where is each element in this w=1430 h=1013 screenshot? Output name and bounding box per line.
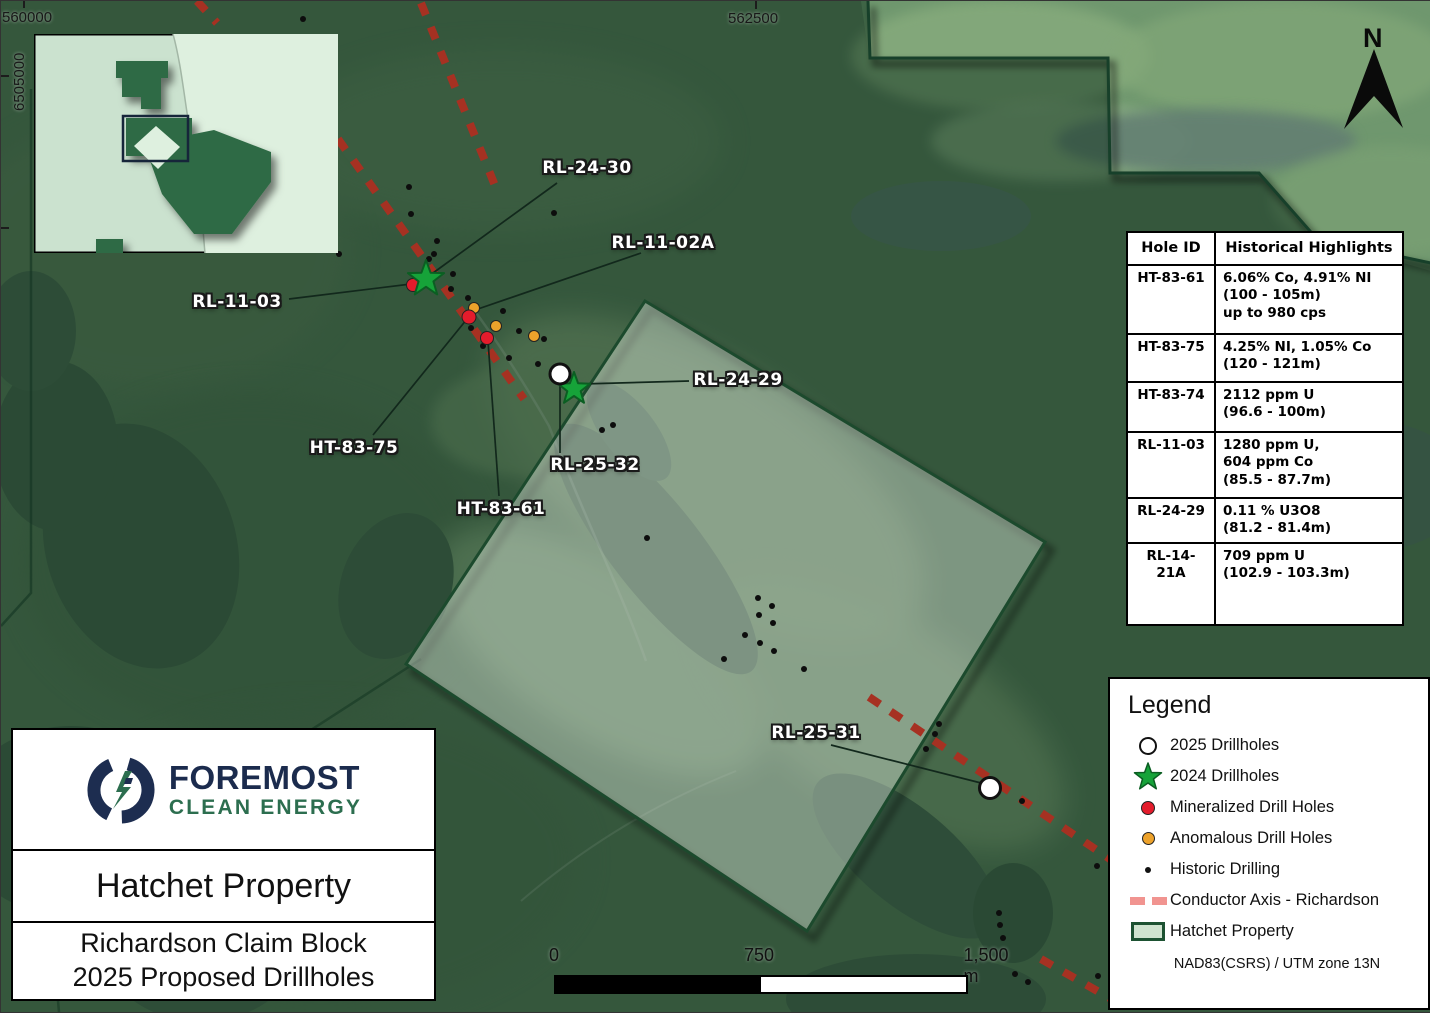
map-canvas: 560000 562500 6505000 N RL-24-30 RL-11-0…	[0, 0, 1430, 1013]
legend-title: Legend	[1128, 691, 1428, 720]
hole-id-cell: HT-83-74	[1127, 382, 1215, 432]
white-circle-icon	[1126, 737, 1170, 755]
company-logo: FOREMOST CLEAN ENERGY	[13, 730, 434, 851]
subtitle-line2: 2025 Proposed Drillholes	[73, 961, 375, 995]
table-row: RL-24-29 0.11 % U3O8 (81.2 - 81.4m)	[1127, 498, 1403, 543]
dashed-line-icon	[1126, 897, 1170, 905]
scale-label-end: 1,500 m	[963, 945, 1008, 987]
table-header-row: Hole ID Historical Highlights	[1127, 232, 1403, 265]
highlight-cell: 1280 ppm U, 604 ppm Co (85.5 - 87.7m)	[1215, 432, 1403, 498]
drillhole-label-rl-24-29: RL-24-29	[693, 370, 782, 390]
red-dot-icon	[1126, 801, 1170, 815]
legend-item-label: 2024 Drillholes	[1170, 767, 1279, 786]
col-header-highlights: Historical Highlights	[1215, 232, 1403, 265]
legend-item-historic: Historic Drilling	[1126, 854, 1428, 885]
coord-easting-left: 560000	[2, 9, 52, 26]
orange-dot-icon	[1126, 832, 1170, 845]
table-row: HT-83-74 2112 ppm U (96.6 - 100m)	[1127, 382, 1403, 432]
map-subtitle: Richardson Claim Block 2025 Proposed Dri…	[13, 923, 434, 999]
drillhole-label-rl-25-32: RL-25-32	[550, 455, 639, 475]
legend-item-anomalous: Anomalous Drill Holes	[1126, 823, 1428, 854]
table-row: RL-14-21A 709 ppm U (102.9 - 103.3m)	[1127, 543, 1403, 625]
legend-item-label: Conductor Axis - Richardson	[1170, 891, 1379, 910]
drillhole-label-rl-25-31: RL-25-31	[771, 723, 860, 743]
drillhole-label-ht-83-75: HT-83-75	[310, 438, 399, 458]
drillhole-label-rl-11-02a: RL-11-02A	[611, 233, 714, 253]
hole-id-cell: RL-24-29	[1127, 498, 1215, 543]
legend-item-label: Historic Drilling	[1170, 860, 1280, 879]
drillhole-label-ht-83-61: HT-83-61	[457, 499, 546, 519]
legend-item-conductor-axis: Conductor Axis - Richardson	[1126, 885, 1428, 916]
north-label: N	[1363, 23, 1383, 54]
legend-item-label: Hatchet Property	[1170, 922, 1294, 941]
hole-id-cell: HT-83-61	[1127, 265, 1215, 334]
highlight-cell: 4.25% NI, 1.05% Co (120 - 121m)	[1215, 334, 1403, 382]
col-header-hole-id: Hole ID	[1127, 232, 1215, 265]
table-row: HT-83-75 4.25% NI, 1.05% Co (120 - 121m)	[1127, 334, 1403, 382]
drillhole-label-rl-24-30: RL-24-30	[542, 158, 631, 178]
legend-item-label: Anomalous Drill Holes	[1170, 829, 1332, 848]
historical-highlights-table: Hole ID Historical Highlights HT-83-61 6…	[1126, 231, 1404, 626]
scale-bar: 0 750 1,500 m	[541, 945, 986, 994]
hole-id-cell: RL-11-03	[1127, 432, 1215, 498]
company-name-line2: CLEAN ENERGY	[169, 797, 362, 818]
datum-label: NAD83(CSRS) / UTM zone 13N	[1126, 956, 1428, 972]
subtitle-line1: Richardson Claim Block	[80, 927, 367, 961]
legend-item-mineralized: Mineralized Drill Holes	[1126, 792, 1428, 823]
highlight-cell: 0.11 % U3O8 (81.2 - 81.4m)	[1215, 498, 1403, 543]
property-title: Hatchet Property	[13, 851, 434, 923]
legend-item-label: 2025 Drillholes	[1170, 736, 1279, 755]
title-block: FOREMOST CLEAN ENERGY Hatchet Property R…	[11, 728, 436, 1001]
coord-easting-center: 562500	[728, 10, 778, 27]
scale-label-start: 0	[549, 945, 559, 966]
highlight-cell: 6.06% Co, 4.91% NI (100 - 105m) up to 98…	[1215, 265, 1403, 334]
company-name-line1: FOREMOST	[169, 761, 362, 794]
property-rectangle-icon	[1126, 922, 1170, 941]
highlight-cell: 2112 ppm U (96.6 - 100m)	[1215, 382, 1403, 432]
hole-id-cell: RL-14-21A	[1127, 543, 1215, 625]
highlight-cell: 709 ppm U (102.9 - 103.3m)	[1215, 543, 1403, 625]
coord-northing-left: 6505000	[11, 53, 28, 111]
foremost-logo-icon	[85, 754, 157, 826]
table-row: HT-83-61 6.06% Co, 4.91% NI (100 - 105m)…	[1127, 265, 1403, 334]
scale-bar-graphic	[554, 975, 968, 994]
drillhole-label-rl-11-03: RL-11-03	[192, 292, 281, 312]
legend-item-hatchet-property: Hatchet Property	[1126, 916, 1428, 947]
black-dot-icon	[1126, 867, 1170, 873]
table-row: RL-11-03 1280 ppm U, 604 ppm Co (85.5 - …	[1127, 432, 1403, 498]
hole-id-cell: HT-83-75	[1127, 334, 1215, 382]
scale-label-mid: 750	[744, 945, 774, 966]
legend-item-2024-drillholes: 2024 Drillholes	[1126, 761, 1428, 792]
legend-panel: Legend 2025 Drillholes 2024 Drillholes M…	[1108, 677, 1430, 1010]
inset-overview-map	[34, 34, 338, 253]
green-star-icon	[1126, 762, 1170, 791]
legend-item-label: Mineralized Drill Holes	[1170, 798, 1334, 817]
legend-item-2025-drillholes: 2025 Drillholes	[1126, 730, 1428, 761]
